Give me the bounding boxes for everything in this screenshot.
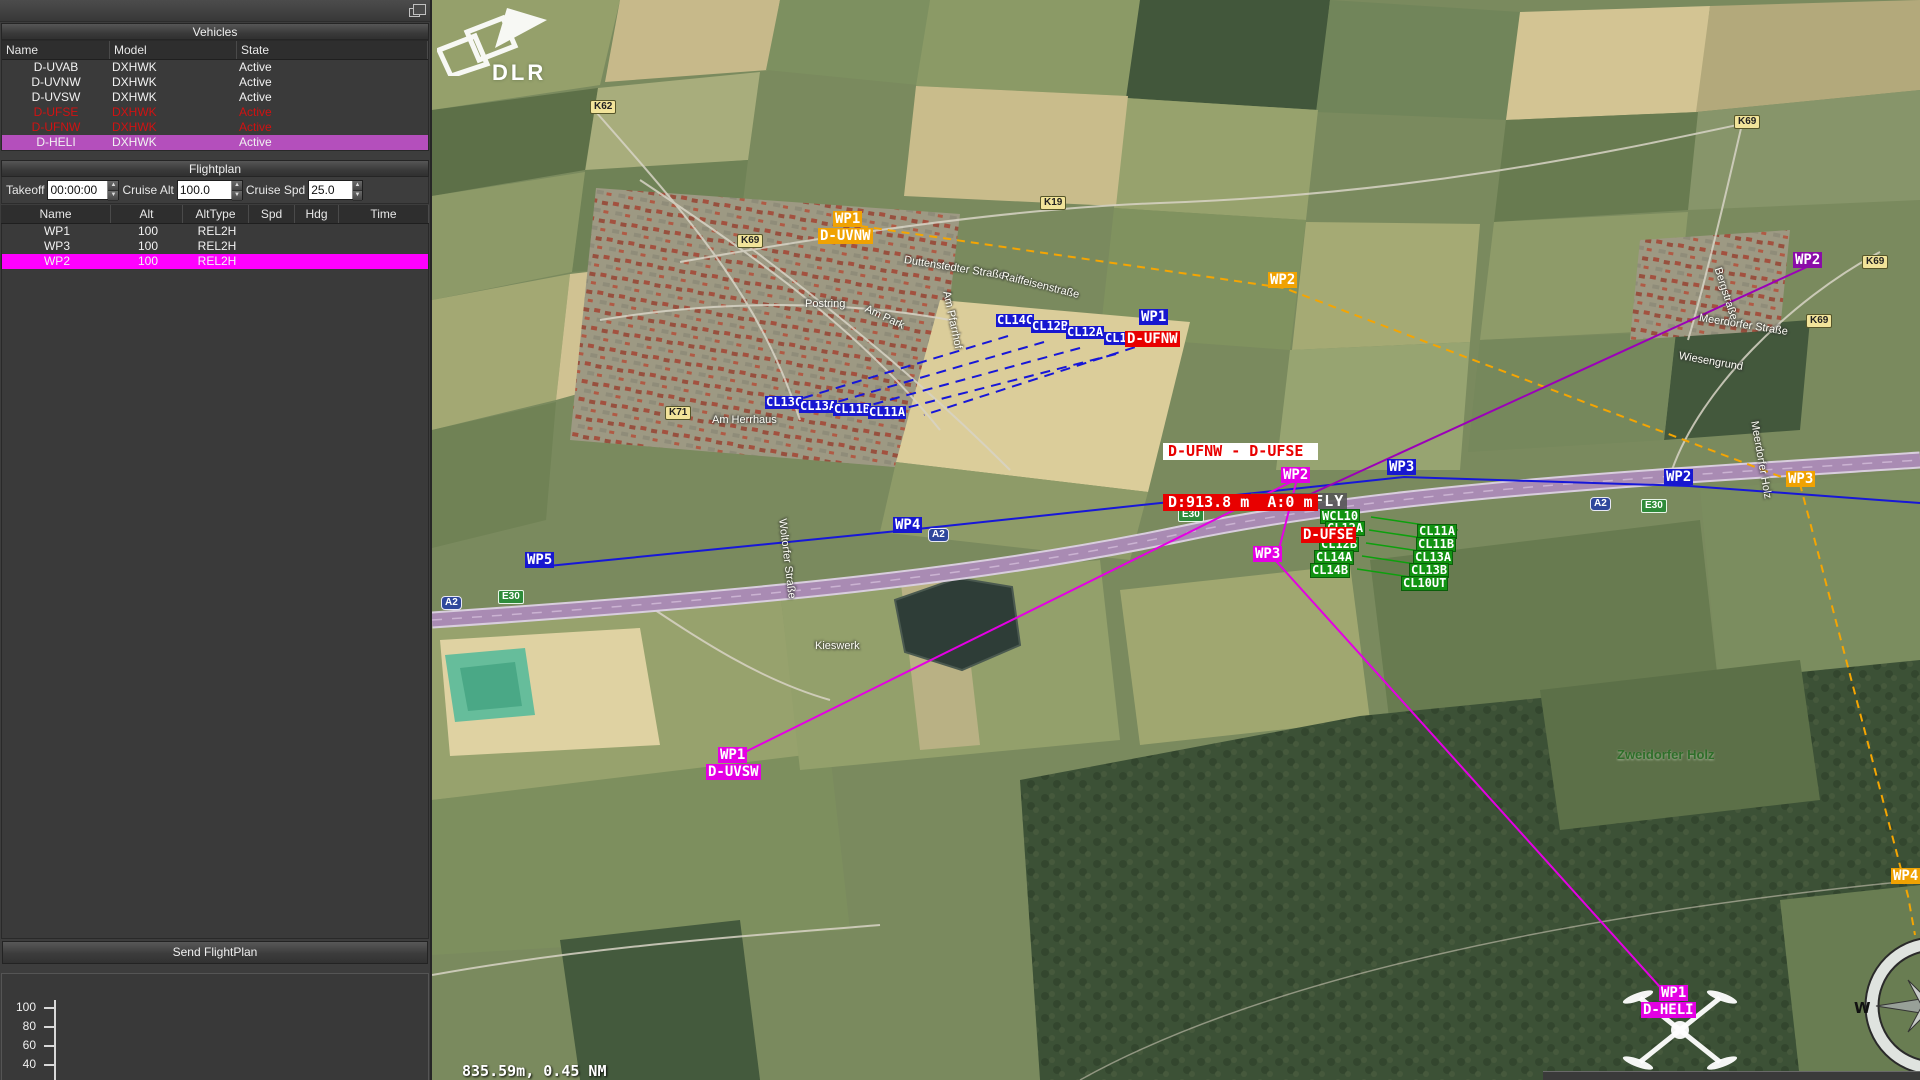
map-label-wp1[interactable]: WP1 [718, 747, 747, 763]
tick-mark [44, 1045, 55, 1047]
altitude-profile-chart: 100 80 60 40 [1, 973, 429, 1080]
waypoint-table: Name Alt AltType Spd Hdg Time WP1 100 RE… [1, 205, 429, 939]
altitude-tick: 100 [2, 1000, 64, 1014]
map-label-d-heli[interactable]: D-HELI [1641, 1002, 1696, 1018]
vehicle-state: Active [237, 120, 428, 135]
map-label-wp2[interactable]: WP2 [1793, 252, 1822, 268]
road-badge-a2: A2 [441, 596, 462, 610]
road-badge-k69: K69 [1862, 255, 1888, 269]
waypoint-table-body: WP1 100 REL2H WP3 100 REL2H WP2 [1, 224, 429, 939]
col-wp-alt[interactable]: Alt [111, 205, 183, 223]
wp-alt: 100 [112, 224, 184, 239]
wp-hdg [296, 224, 340, 239]
flightplan-panel: Flightplan Takeoff ▲▼ Cruise Alt ▲▼ Crui… [1, 160, 429, 939]
cruise-spd-input[interactable] [309, 181, 352, 199]
street-label: Woltorfer Straße [776, 518, 798, 599]
compass-rose[interactable]: W [1850, 936, 1920, 1080]
spin-down-icon[interactable]: ▼ [232, 191, 242, 201]
wp-alttype: REL2H [184, 239, 250, 254]
vehicles-panel-title: Vehicles [1, 23, 429, 40]
flightplan-controls: Takeoff ▲▼ Cruise Alt ▲▼ Cruise Spd ▲▼ [1, 177, 429, 204]
spin-up-icon[interactable]: ▲ [108, 181, 118, 191]
map-label-wp2[interactable]: WP2 [1268, 272, 1297, 288]
vehicle-state: Active [237, 135, 428, 150]
vehicle-row[interactable]: D-UVSW DXHWK Active [2, 90, 428, 105]
send-flightplan-button[interactable]: Send FlightPlan [2, 941, 428, 964]
street-label: Wiesengrund [1678, 350, 1744, 373]
cluster-label-cl14b[interactable]: CL14B [1310, 563, 1350, 578]
vehicle-row-selected[interactable]: D-HELI DXHWK Active [2, 135, 428, 150]
vehicle-name: D-UVAB [2, 60, 110, 75]
tick-label: 80 [2, 1019, 36, 1033]
col-name[interactable]: Name [2, 41, 110, 59]
wp-time [340, 224, 428, 239]
col-wp-spd[interactable]: Spd [249, 205, 295, 223]
cluster-label-cl10ut[interactable]: CL10UT [1401, 576, 1448, 591]
waypoint-row[interactable]: WP1 100 REL2H [2, 224, 428, 239]
vehicle-state: Active [237, 105, 428, 120]
map-label-wp3[interactable]: WP3 [1387, 459, 1416, 475]
road-badge-e30: E30 [498, 590, 524, 604]
road-badge-k69: K69 [1734, 115, 1760, 129]
map-label-wp1[interactable]: WP1 [1659, 985, 1688, 1001]
panel-titlebar[interactable] [0, 0, 430, 22]
tick-label: 100 [2, 1000, 36, 1014]
col-wp-alttype[interactable]: AltType [183, 205, 249, 223]
cluster-label-cl11a[interactable]: CL11A [868, 406, 906, 419]
map-label-wp4[interactable]: WP4 [893, 517, 922, 533]
cluster-label-cl13a[interactable]: CL13A [799, 400, 837, 413]
bottom-status-strip [1543, 1071, 1920, 1080]
wp-time [340, 254, 428, 269]
vehicle-state: Active [237, 60, 428, 75]
vehicles-table: Name Model State D-UVAB DXHWK Active D-U… [1, 40, 429, 151]
separation-warning: D-UFNW - D-UFSE D:913.8 m A:0 m [1163, 409, 1318, 545]
vehicle-model: DXHWK [110, 135, 237, 150]
cruise-alt-input[interactable] [178, 181, 231, 199]
wp-alt: 100 [112, 254, 184, 269]
street-label: Bergstraße [1712, 266, 1740, 321]
vehicle-row-alert[interactable]: D-UFNW DXHWK Active [2, 120, 428, 135]
map-scale-text: 835.59m, 0.45 NM [462, 1062, 607, 1080]
vehicle-name: D-UVNW [2, 75, 110, 90]
map-view[interactable]: DLR D-UFNW - D-UFSE D:913.8 m A:0 m [432, 0, 1920, 1080]
map-label-wp2[interactable]: WP2 [1664, 469, 1693, 485]
takeoff-spinbox: ▲▼ [47, 180, 119, 200]
vehicle-model: DXHWK [110, 120, 237, 135]
vehicle-name: D-HELI [2, 135, 110, 150]
takeoff-input[interactable] [48, 181, 107, 199]
takeoff-label: Takeoff [6, 183, 44, 197]
altitude-tick: 60 [2, 1038, 64, 1052]
wp-name: WP3 [2, 239, 112, 254]
col-wp-hdg[interactable]: Hdg [295, 205, 339, 223]
vehicle-row[interactable]: D-UVAB DXHWK Active [2, 60, 428, 75]
vehicle-name: D-UFSE [2, 105, 110, 120]
tick-mark [44, 1007, 55, 1009]
takeoff-spinner-buttons[interactable]: ▲▼ [107, 181, 118, 199]
vehicle-state: Active [237, 90, 428, 105]
wp-alt: 100 [112, 239, 184, 254]
cruise-alt-spinbox: ▲▼ [177, 180, 243, 200]
compass-west-label: W [1854, 999, 1871, 1017]
vehicle-name: D-UFNW [2, 120, 110, 135]
map-label-wp1[interactable]: WP1 [1139, 309, 1168, 325]
street-label: Duttenstedter Straße [903, 254, 1006, 282]
cruise-spd-spinner-buttons[interactable]: ▲▼ [352, 181, 362, 199]
flightplan-panel-title: Flightplan [1, 160, 429, 177]
map-label-wp3[interactable]: WP3 [1253, 546, 1282, 562]
col-state[interactable]: State [237, 41, 428, 59]
altitude-tick: 80 [2, 1019, 64, 1033]
vehicle-model: DXHWK [110, 75, 237, 90]
street-label: Kieswerk [815, 640, 860, 652]
road-badge-k69: K69 [737, 234, 763, 248]
road-badge-k71: K71 [665, 406, 691, 420]
map-label-wp1[interactable]: WP1 [833, 211, 862, 227]
cluster-label-cl12a[interactable]: CL12A [1066, 326, 1104, 339]
road-badge-a2: A2 [928, 528, 949, 542]
cluster-label-cl14c[interactable]: CL14C [996, 314, 1034, 327]
vehicles-table-header: Name Model State [2, 41, 428, 60]
tick-mark [44, 1064, 55, 1066]
wp-time [340, 239, 428, 254]
vehicle-model: DXHWK [110, 105, 237, 120]
road-badge-e30: E30 [1641, 499, 1667, 513]
float-window-icon[interactable] [409, 8, 420, 17]
spin-down-icon[interactable]: ▼ [108, 191, 118, 201]
vehicle-model: DXHWK [110, 60, 237, 75]
wp-alttype: REL2H [184, 254, 250, 269]
cruise-spd-spinbox: ▲▼ [308, 180, 363, 200]
cluster-label-cl11b[interactable]: CL11B [833, 403, 871, 416]
spin-up-icon[interactable]: ▲ [353, 181, 362, 191]
vehicle-state: Active [237, 75, 428, 90]
vehicle-row[interactable]: D-UVNW DXHWK Active [2, 75, 428, 90]
cluster-label-cl12b[interactable]: CL12B [1031, 320, 1069, 333]
wp-spd [250, 254, 296, 269]
vehicles-panel: Vehicles Name Model State D-UVAB DXHWK A… [1, 23, 429, 151]
road-badge-k19: K19 [1040, 196, 1066, 210]
separation-warning-pair: D-UFNW - D-UFSE [1163, 443, 1318, 460]
waypoint-table-header: Name Alt AltType Spd Hdg Time [1, 205, 429, 224]
map-label-wp3[interactable]: WP3 [1786, 471, 1815, 487]
area-label-zweidorfer-holz: Zweidorfer Holz [1617, 747, 1715, 762]
separation-warning-distance: D:913.8 m A:0 m [1163, 494, 1318, 511]
wp-spd [250, 239, 296, 254]
vehicle-model: DXHWK [110, 90, 237, 105]
wp-name: WP1 [2, 224, 112, 239]
map-overlay: DLR D-UFNW - D-UFSE D:913.8 m A:0 m [432, 0, 1920, 1080]
spin-down-icon[interactable]: ▼ [353, 191, 362, 201]
street-label: Raiffeisenstraße [1000, 270, 1080, 301]
map-label-wp5[interactable]: WP5 [525, 552, 554, 568]
street-label: Am Park [863, 303, 906, 332]
tick-label: 40 [2, 1057, 36, 1071]
wp-hdg [296, 254, 340, 269]
wp-hdg [296, 239, 340, 254]
waypoint-row[interactable]: WP3 100 REL2H [2, 239, 428, 254]
col-wp-time[interactable]: Time [339, 205, 429, 223]
dlr-logo-text: DLR [492, 60, 546, 86]
vehicle-name: D-UVSW [2, 90, 110, 105]
cruise-spd-label: Cruise Spd [246, 183, 305, 197]
street-label: Am Herrhaus [712, 414, 777, 426]
tick-mark [44, 1026, 55, 1028]
road-badge-a2: A2 [1590, 497, 1611, 511]
cluster-label-cl13c[interactable]: CL13C [765, 396, 803, 409]
road-badge-k69: K69 [1806, 314, 1832, 328]
street-label: Meerdorfer Holz [1748, 420, 1774, 500]
street-label: Meerdorfer Straße [1698, 312, 1789, 338]
altitude-tick: 40 [2, 1057, 64, 1071]
map-label-d-uvnw[interactable]: D-UVNW [818, 228, 873, 244]
wp-alttype: REL2H [184, 224, 250, 239]
wp-name: WP2 [2, 254, 112, 269]
wp-spd [250, 224, 296, 239]
col-wp-name[interactable]: Name [1, 205, 111, 223]
road-badge-k62: K62 [590, 100, 616, 114]
map-label-wp4[interactable]: WP4 [1891, 868, 1920, 884]
spin-up-icon[interactable]: ▲ [232, 181, 242, 191]
cruise-alt-spinner-buttons[interactable]: ▲▼ [231, 181, 242, 199]
street-label: Am Pfarrhof [940, 290, 964, 350]
map-label-d-uvsw[interactable]: D-UVSW [706, 764, 761, 780]
map-label-d-ufnw[interactable]: D-UFNW [1125, 331, 1180, 347]
cruise-alt-label: Cruise Alt [122, 183, 173, 197]
waypoint-row-selected[interactable]: WP2 100 REL2H [2, 254, 428, 269]
tick-label: 60 [2, 1038, 36, 1052]
control-sidebar: Vehicles Name Model State D-UVAB DXHWK A… [0, 0, 432, 1080]
street-label: Postring [805, 298, 845, 310]
vehicle-row-alert[interactable]: D-UFSE DXHWK Active [2, 105, 428, 120]
col-model[interactable]: Model [110, 41, 237, 59]
